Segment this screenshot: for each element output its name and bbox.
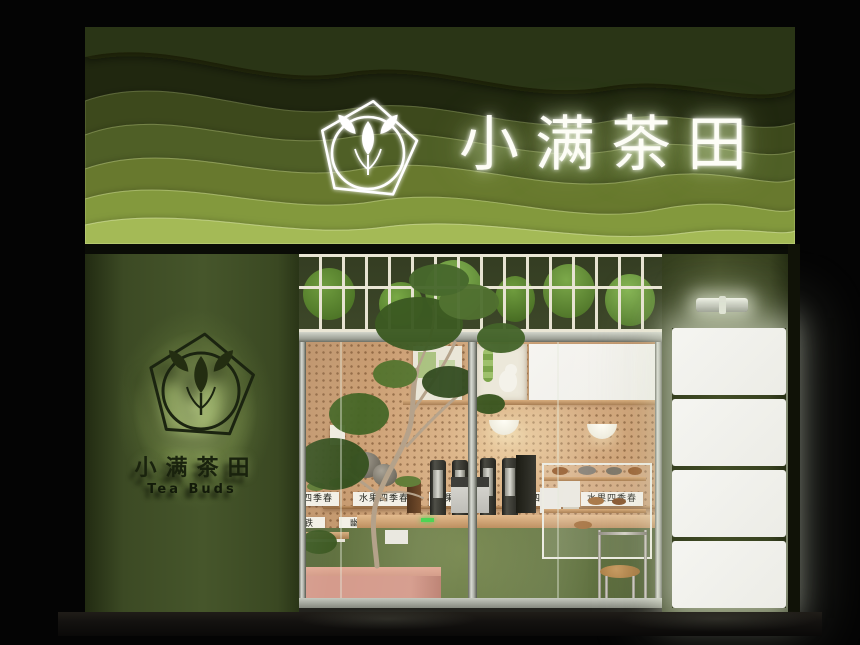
pastry [588,497,604,505]
left-facade-wall: 小满茶田 Tea Buds [85,254,299,612]
wall-lamp [696,298,748,312]
glass-joint [340,342,342,598]
pastry [578,466,596,475]
pastry [552,467,568,475]
mullion-right [655,342,662,610]
sign-shop-name: 小满茶田 [437,115,785,175]
pastry [606,467,622,475]
sidewalk [58,612,822,636]
sign-shadow-gap [85,244,795,254]
mullion-center [468,342,477,610]
facade-right-edge [788,244,800,616]
pastry [628,467,642,475]
mullion-left [299,342,306,610]
storefront-scene: 小满茶田 小满茶田 Tea Buds [0,0,860,645]
illuminated-door-panel [672,328,786,608]
door-light-cell [672,470,786,537]
shop-interior: 水果四季春水果四季春水果四季春水果四季春水果四季春水果四季春幽兰拿铁幽兰拿铁幽兰… [299,342,662,612]
wall-shop-name-en: Tea Buds [85,482,299,497]
storefront-glass: 水果四季春水果四季春水果四季春水果四季春水果四季春水果四季春幽兰拿铁幽兰拿铁幽兰… [299,254,662,612]
interior-tree [299,254,549,584]
door-light-cell [672,328,786,395]
light-pool [298,608,478,630]
wall-logo-tea-bud-icon [125,312,277,464]
door-light-cell [672,541,786,608]
bottom-rail [299,598,662,608]
door-light-cell [672,399,786,466]
pastry [574,521,592,529]
pastry [612,498,626,505]
case-shelf [544,509,646,513]
chair-frame [598,532,647,535]
glass-joint [557,342,559,598]
right-facade-wall [662,254,788,612]
case-machine [558,481,580,507]
signboard: 小满茶田 [85,27,795,244]
wall-shop-name: 小满茶田 [85,450,299,482]
light-pool [618,606,818,632]
